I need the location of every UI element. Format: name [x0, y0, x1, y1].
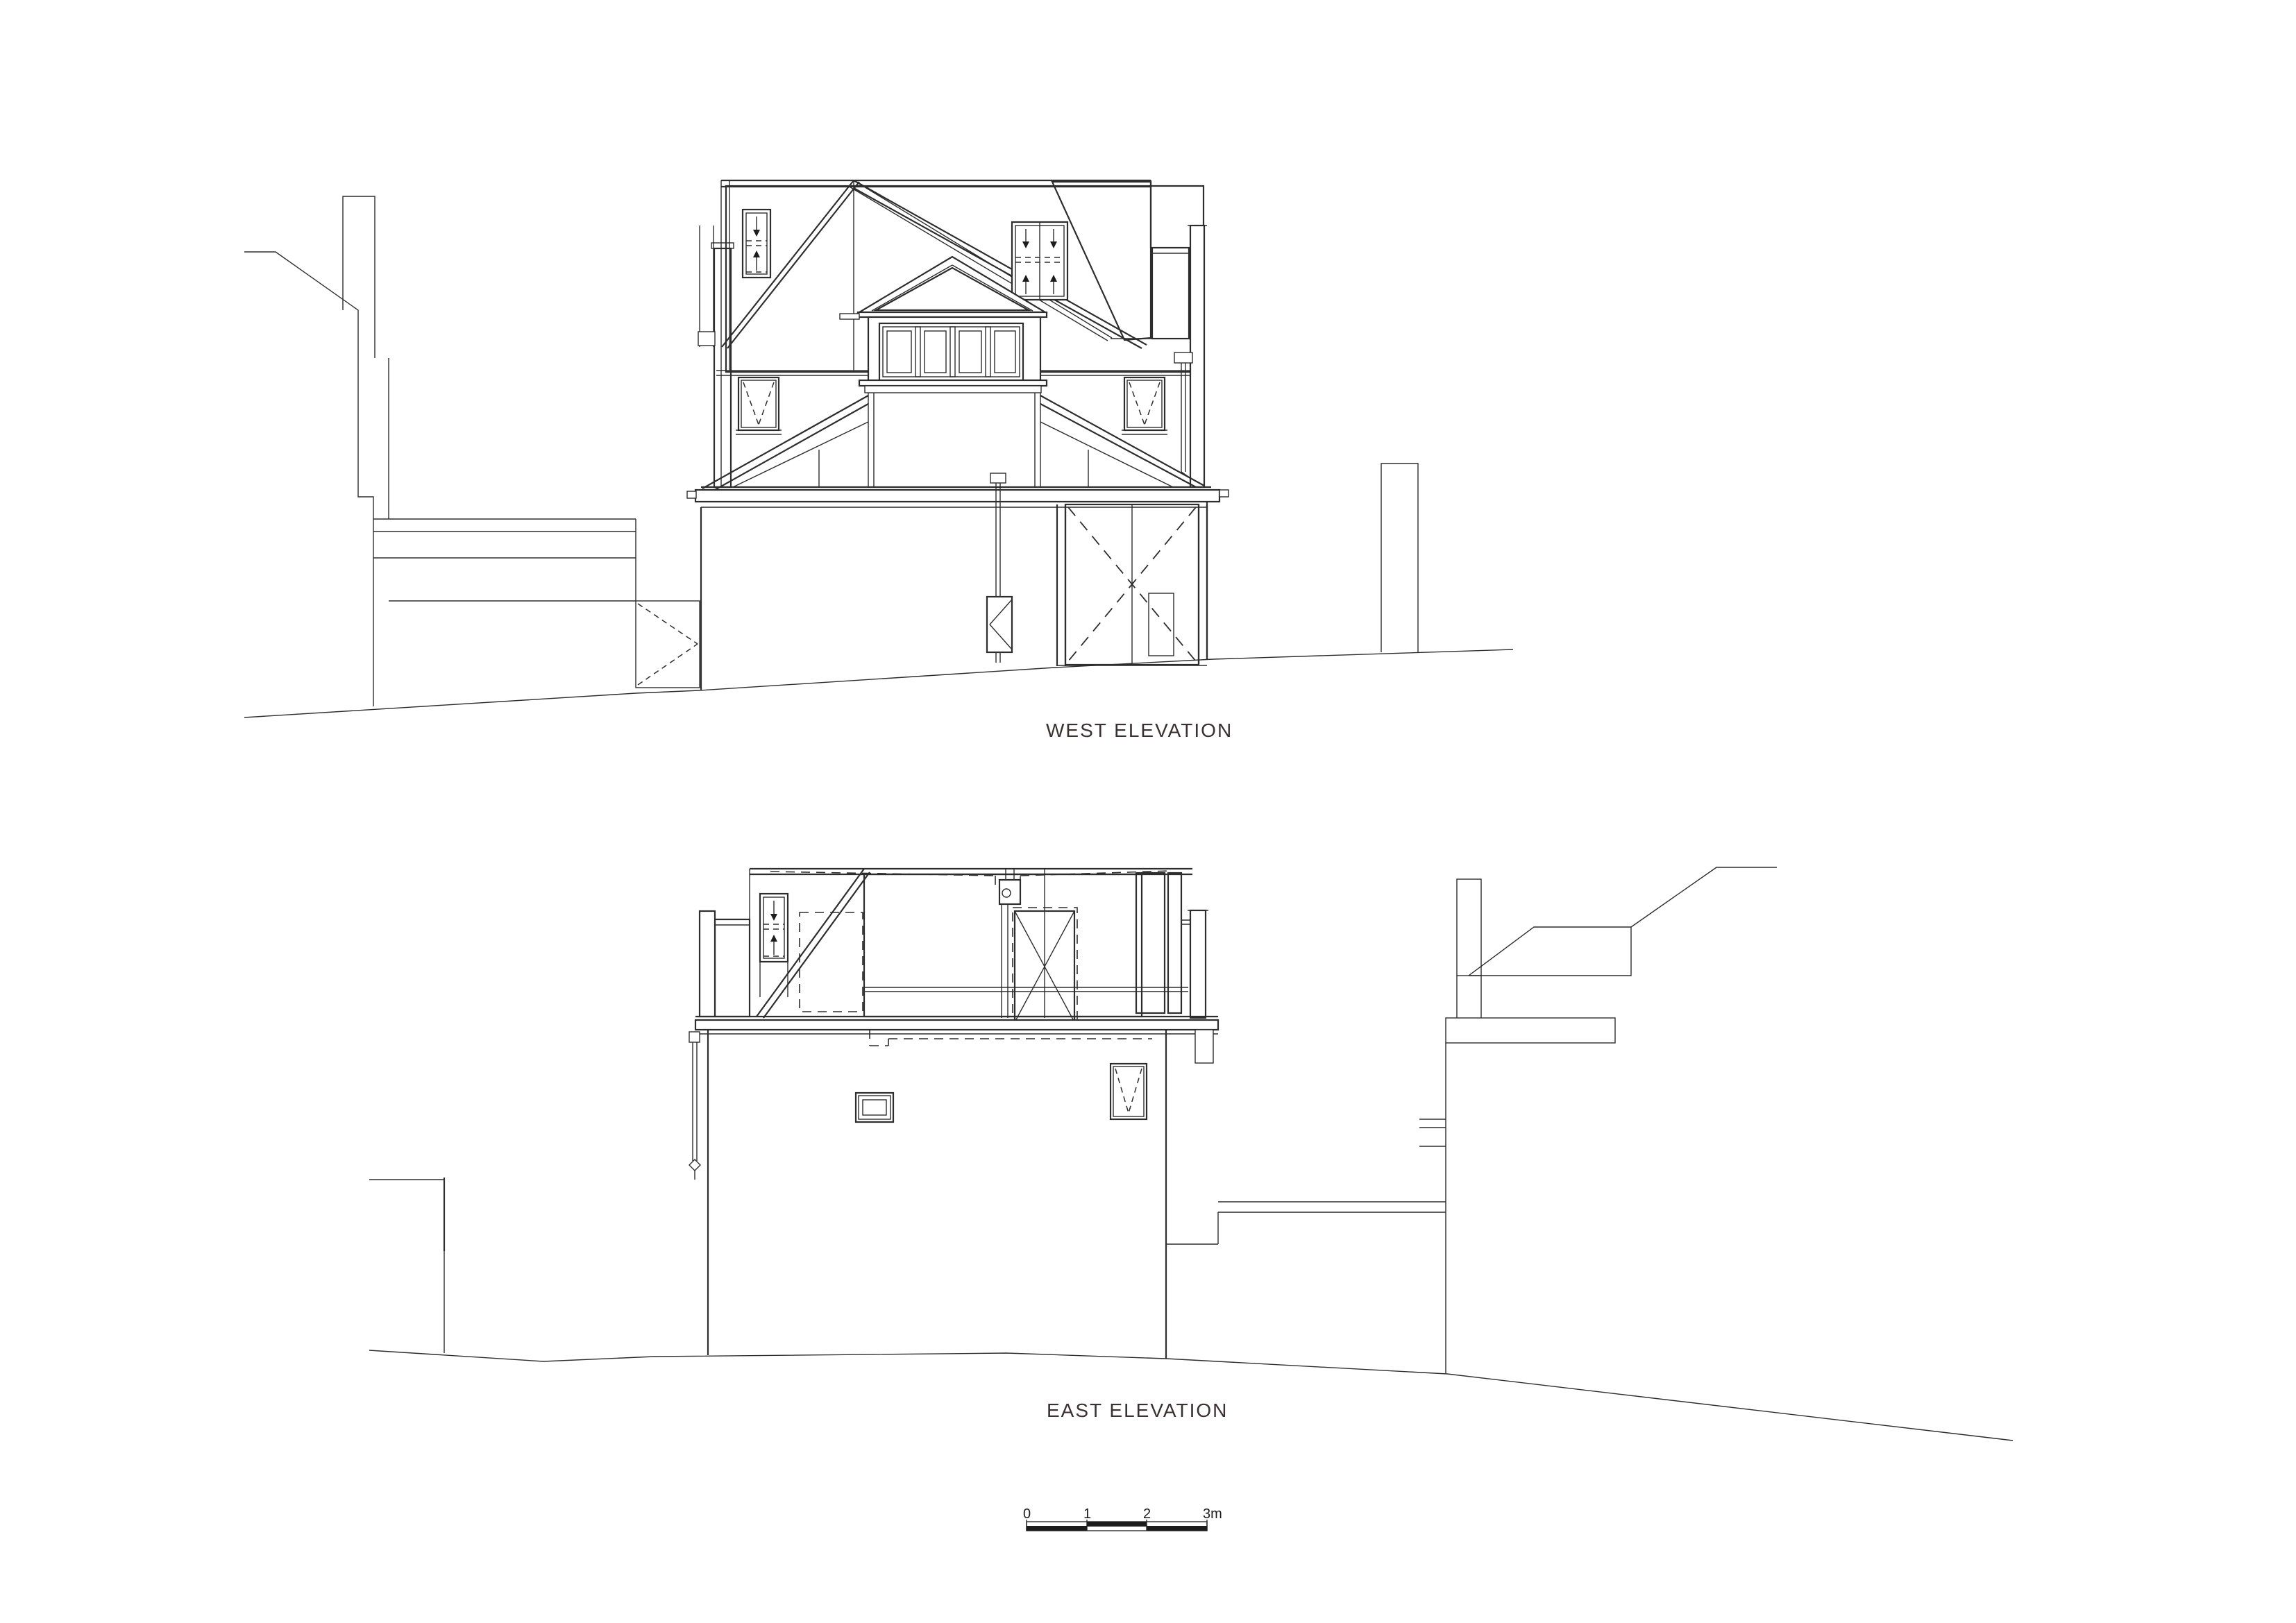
- west-truss-right: [1040, 396, 1204, 487]
- east-downpipe: [689, 1032, 700, 1180]
- scale-bar: 0 1 2 3m: [1023, 1506, 1222, 1531]
- west-ground-floor: [701, 473, 1207, 690]
- west-neighbour-right: [1381, 464, 1418, 652]
- west-neighbour-left: [244, 196, 700, 706]
- east-louvre-panel-left: [715, 919, 750, 1017]
- west-door-vision-panel: [1149, 593, 1174, 656]
- west-louvre-screen-right: [1152, 248, 1189, 339]
- east-terrace-level: [700, 869, 1208, 1026]
- west-elevation-label: WEST ELEVATION: [1046, 720, 1233, 741]
- west-side-gate: [636, 601, 700, 688]
- east-terrace-rail: [864, 987, 1188, 992]
- scale-tick-1: 1: [1083, 1506, 1091, 1522]
- east-casement-window: [1111, 1064, 1147, 1119]
- east-elevation-label: EAST ELEVATION: [1047, 1400, 1228, 1421]
- east-ground-line: [369, 1350, 2013, 1441]
- elevation-drawing: WEST ELEVATION EAST ELEVATION 0 1 2 3m: [0, 0, 2296, 1623]
- west-truss-left: [702, 396, 868, 497]
- drawing-sheet: WEST ELEVATION EAST ELEVATION 0 1 2 3m: [0, 0, 2296, 1623]
- west-window-right: [1122, 377, 1167, 434]
- scale-tick-0: 0: [1023, 1506, 1031, 1522]
- west-garage-door: [1057, 504, 1207, 666]
- east-elevation-drawing: [369, 867, 2013, 1441]
- east-corner-post-left: [700, 911, 715, 1017]
- east-neighbour-right: [1166, 867, 1777, 1374]
- west-vent-louvre-left: [743, 210, 770, 278]
- east-hidden-stair-outline: [800, 912, 863, 1012]
- west-window-left: [736, 377, 782, 434]
- east-pulley-hoist: [999, 869, 1020, 1018]
- west-ground-line: [244, 649, 1513, 717]
- west-vent-louvre-right: [1012, 222, 1067, 300]
- scale-tick-2: 2: [1143, 1506, 1151, 1522]
- west-hopper: [990, 473, 1006, 483]
- east-deck-band: [695, 1017, 1218, 1063]
- east-corner-post-right: [1190, 910, 1206, 1018]
- scale-tick-3: 3m: [1203, 1506, 1222, 1522]
- west-louvre-strip-left: [714, 248, 731, 487]
- west-elevation-drawing: [244, 180, 1513, 717]
- east-lower-wall: [689, 1030, 1166, 1359]
- east-retaining-wall-left: [369, 1178, 444, 1353]
- west-hatch: [987, 597, 1012, 652]
- west-dormer-window: [879, 323, 1023, 380]
- east-small-window: [856, 1093, 893, 1122]
- east-vent-louvre: [760, 894, 788, 997]
